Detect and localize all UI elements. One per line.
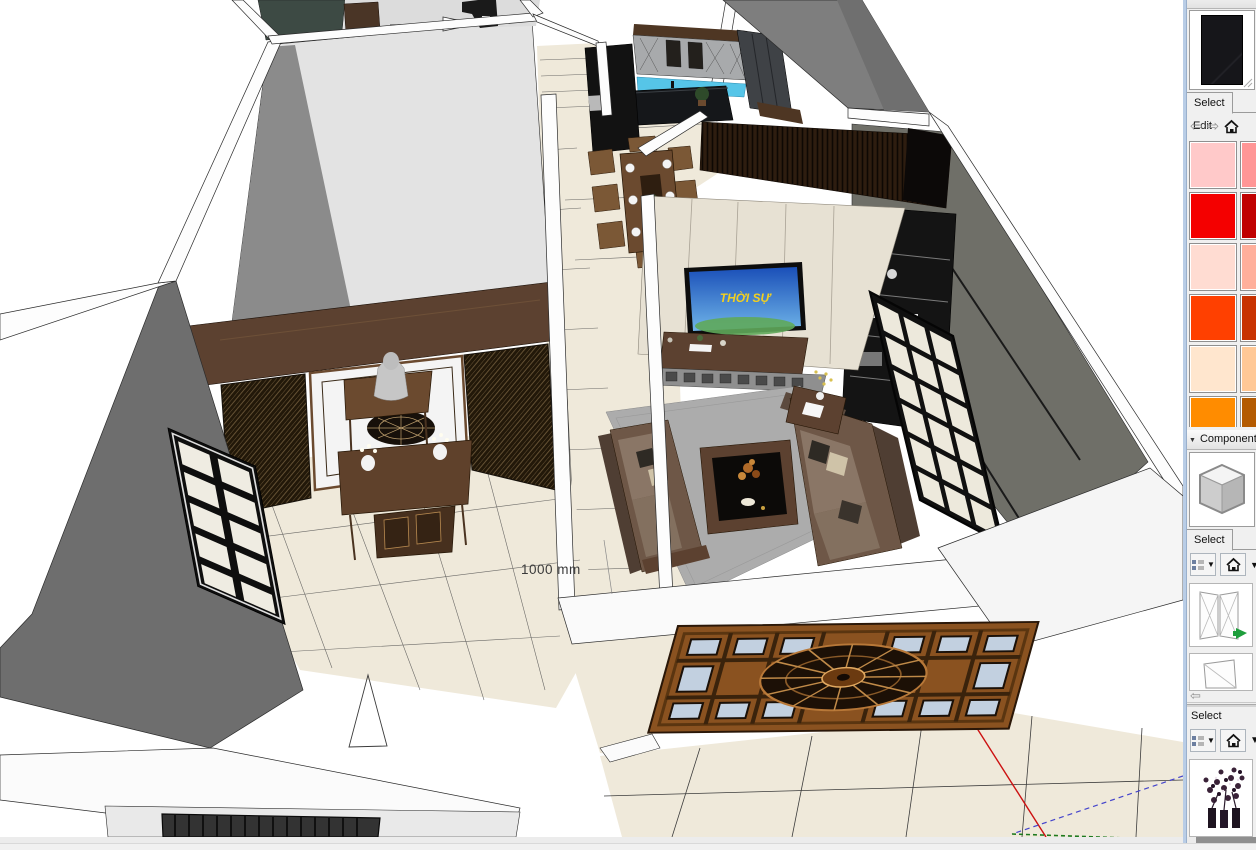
material-color-swatch[interactable]	[1240, 396, 1256, 427]
statusbar-icon-fragment	[2, 844, 14, 850]
material-color-swatch[interactable]	[1189, 243, 1237, 291]
materials-tabs: SelectEdit	[1186, 90, 1256, 113]
resize-grip-icon[interactable]	[1243, 78, 1253, 88]
back-arrow-icon[interactable]: ⇦	[1190, 119, 1203, 134]
material-color-swatch[interactable]	[1240, 243, 1256, 291]
collapse-triangle-icon: ▼	[1189, 437, 1196, 444]
materials-title: Materials	[1200, 0, 1245, 3]
home-icon[interactable]	[1223, 119, 1240, 134]
forward-arrow-icon[interactable]: ⇨	[1207, 119, 1220, 134]
model-canvas: THỜI SỰ	[0, 0, 1183, 837]
view-options-button[interactable]: ▼	[1190, 729, 1216, 752]
secondary-pane-label: Select	[1191, 710, 1222, 722]
components-title: Components	[1200, 433, 1256, 445]
materials-tab-select[interactable]: Select	[1186, 92, 1233, 114]
home-icon	[1225, 733, 1242, 748]
components-nav-row: ⇦	[1186, 688, 1256, 703]
view-options-button[interactable]: ▼	[1190, 553, 1216, 576]
floor-triangle-marker	[349, 675, 387, 747]
material-color-swatch[interactable]	[1240, 294, 1256, 342]
active-material-thumbnail[interactable]	[1201, 15, 1243, 85]
material-color-swatch[interactable]	[1240, 192, 1256, 240]
component-thumbnail-plant[interactable]	[1189, 759, 1253, 837]
components-tab-select[interactable]: Select	[1186, 529, 1233, 551]
components-toolbar: ▼ ▼	[1186, 551, 1256, 578]
secondary-toolbar: ▼ ▼	[1186, 727, 1256, 754]
material-color-swatch[interactable]	[1189, 345, 1237, 393]
chevron-down-icon: ▼	[1207, 560, 1215, 569]
double-door-icon	[1190, 584, 1250, 644]
collections-dropdown-icon[interactable]: ▼	[1250, 560, 1256, 570]
material-color-swatch[interactable]	[1240, 141, 1256, 189]
material-color-swatch[interactable]	[1240, 345, 1256, 393]
coffee-table	[700, 440, 798, 534]
ornate-ceiling-panel	[648, 622, 1038, 733]
material-color-swatch[interactable]	[1189, 141, 1237, 189]
collapse-triangle-icon: ▼	[1189, 0, 1196, 2]
materials-toolbar: ⇦ ⇨	[1186, 113, 1256, 140]
home-icon	[1225, 557, 1242, 572]
shuttered-window	[162, 814, 380, 837]
in-model-button[interactable]	[1220, 553, 1246, 576]
green-arrow-icon	[1236, 628, 1247, 639]
secondary-pane-header: Select	[1186, 707, 1256, 726]
material-color-swatch[interactable]	[1189, 192, 1237, 240]
material-color-swatch[interactable]	[1189, 396, 1237, 427]
components-panel-header[interactable]: ▼Components	[1186, 430, 1256, 450]
model-viewport[interactable]: THỜI SỰ	[0, 0, 1183, 837]
materials-preview	[1189, 10, 1255, 90]
chevron-down-icon: ▼	[1207, 736, 1215, 745]
material-color-swatch[interactable]	[1189, 294, 1237, 342]
component-cube-icon	[1194, 459, 1250, 519]
component-thumbnail-door[interactable]	[1189, 583, 1253, 647]
back-arrow-icon[interactable]: ⇦	[1190, 689, 1201, 702]
components-tabs: SelectEdit	[1186, 527, 1256, 550]
component-thumbnail-door-2[interactable]	[1189, 653, 1253, 691]
materials-swatch-grid	[1189, 141, 1256, 427]
tray-panel: ▼Materials SelectEdit ⇦ ⇨ ▼Components	[1183, 0, 1256, 843]
in-model-button[interactable]	[1220, 729, 1246, 752]
sketchup-window: THỜI SỰ	[0, 0, 1256, 850]
dimension-label: 1000 mm	[521, 562, 581, 577]
materials-panel-header[interactable]: ▼Materials	[1186, 0, 1256, 9]
collections-dropdown-icon[interactable]: ▼	[1250, 735, 1256, 746]
bottom-wall	[0, 748, 520, 837]
single-door-icon	[1190, 654, 1250, 690]
view-options-icon	[1191, 735, 1205, 747]
tray-border[interactable]	[1183, 0, 1187, 843]
tv-text: THỜI SỰ	[720, 290, 773, 305]
status-bar	[0, 843, 1256, 850]
view-options-icon	[1191, 559, 1205, 571]
components-preview	[1189, 452, 1255, 527]
tv-screen: THỜI SỰ	[684, 262, 806, 336]
flower-vase-icon	[1190, 760, 1250, 834]
